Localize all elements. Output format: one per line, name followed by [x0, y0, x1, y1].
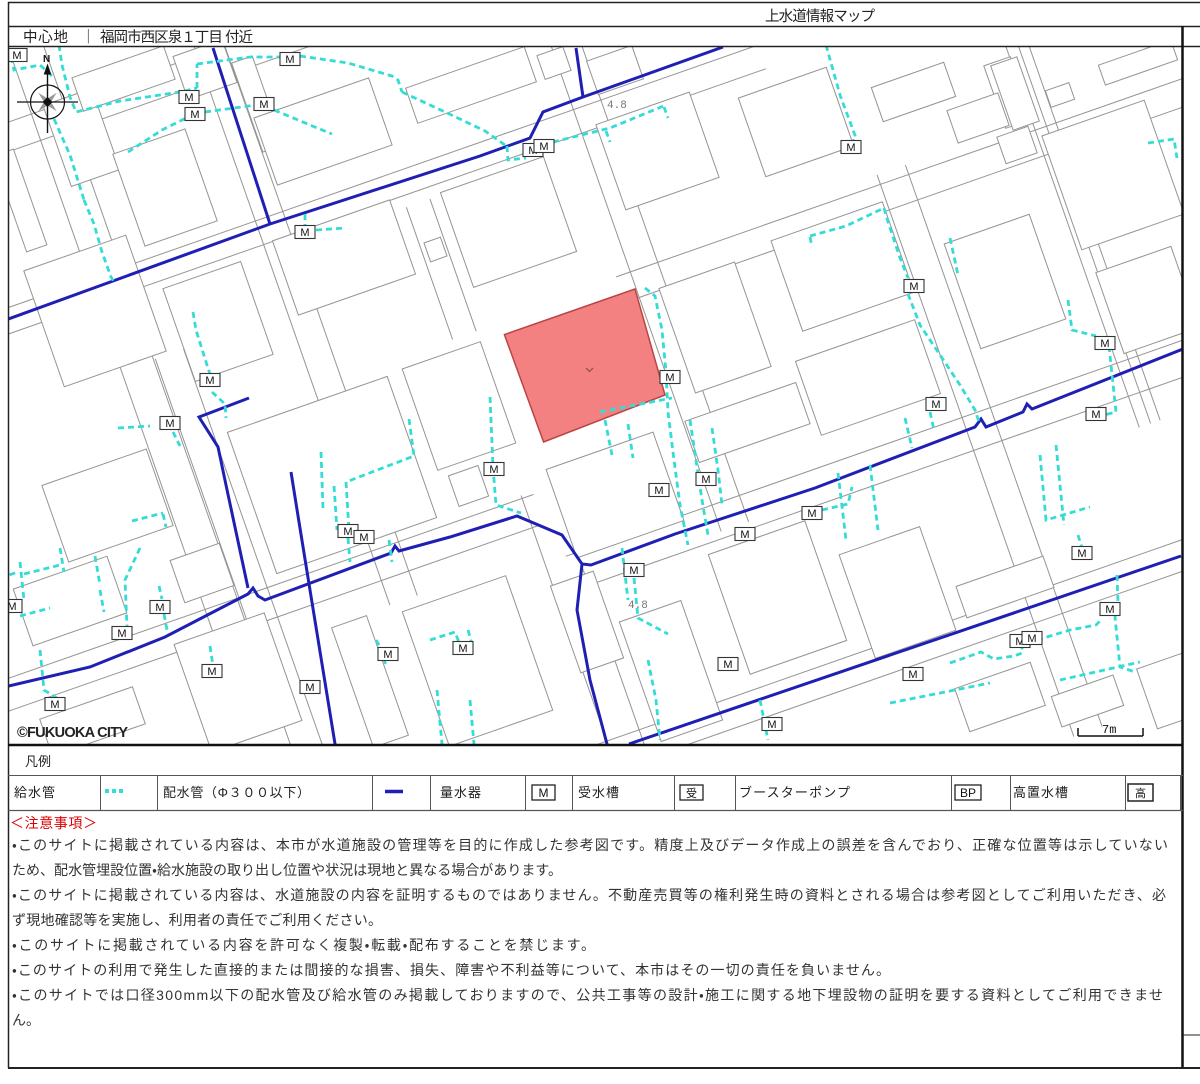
- svg-text:福岡市西区泉１丁目 付近: 福岡市西区泉１丁目 付近: [100, 29, 253, 46]
- svg-text:上水道情報マップ: 上水道情報マップ: [765, 8, 876, 25]
- svg-text:中心地: 中心地: [23, 29, 68, 46]
- svg-text:©FUKUOKA CITY: ©FUKUOKA CITY: [17, 725, 128, 741]
- svg-text:M: M: [259, 99, 268, 111]
- svg-text:M: M: [205, 375, 214, 387]
- svg-text:M: M: [207, 666, 216, 678]
- svg-text:・このサイトの利用で発生した直接的または間接的な損害、損失、: ・このサイトの利用で発生した直接的または間接的な損害、損失、障害や不利益等につい…: [12, 962, 890, 978]
- svg-text:M: M: [539, 141, 548, 153]
- svg-text:M: M: [1027, 633, 1036, 645]
- svg-text:M: M: [305, 682, 314, 694]
- svg-text:M: M: [740, 529, 749, 541]
- svg-text:・このサイトに掲載されている内容を許可なく複製・転載・配布す: ・このサイトに掲載されている内容を許可なく複製・転載・配布することを禁じます。: [12, 937, 595, 953]
- svg-text:・このサイトに掲載されている内容は、本市が水道施設の管理等を: ・このサイトに掲載されている内容は、本市が水道施設の管理等を目的に作成した参考図…: [12, 837, 1168, 853]
- svg-text:受: 受: [686, 787, 697, 800]
- svg-text:M: M: [539, 786, 549, 800]
- svg-text:BP: BP: [960, 786, 976, 800]
- svg-text:M: M: [117, 628, 126, 640]
- svg-text:M: M: [665, 372, 674, 384]
- svg-text:4.8: 4.8: [628, 600, 648, 612]
- svg-text:M: M: [723, 659, 732, 671]
- svg-text:M: M: [489, 464, 498, 476]
- svg-text:量水器: 量水器: [440, 785, 481, 800]
- svg-text:M: M: [190, 109, 199, 121]
- svg-text:7m: 7m: [1102, 723, 1116, 737]
- svg-text:配水管（Φ３００以下）: 配水管（Φ３００以下）: [163, 785, 310, 800]
- svg-text:ため、配水管埋設位置・給水施設の取り出し位置や状況は現地と異: ため、配水管埋設位置・給水施設の取り出し位置や状況は現地と異なる場合があります。: [12, 862, 562, 878]
- svg-text:N: N: [43, 54, 50, 65]
- svg-text:M: M: [807, 508, 816, 520]
- svg-text:M: M: [909, 281, 918, 293]
- svg-text:給水管: 給水管: [14, 785, 55, 800]
- svg-text:M: M: [12, 50, 21, 62]
- svg-text:ず現地確認等を実施し、利用者の責任でご利用ください。: ず現地確認等を実施し、利用者の責任でご利用ください。: [12, 912, 382, 928]
- svg-text:M: M: [383, 649, 392, 661]
- svg-text:M: M: [285, 54, 294, 66]
- svg-text:M: M: [1091, 409, 1100, 421]
- svg-text:＜注意事項＞: ＜注意事項＞: [10, 815, 97, 831]
- svg-text:M: M: [908, 669, 917, 681]
- svg-text:M: M: [184, 92, 193, 104]
- svg-text:M: M: [931, 399, 940, 411]
- svg-text:M: M: [155, 602, 164, 614]
- svg-text:｜: ｜: [81, 29, 96, 46]
- svg-text:ん。: ん。: [12, 1012, 40, 1028]
- svg-text:M: M: [359, 532, 368, 544]
- svg-text:M: M: [846, 142, 855, 154]
- svg-text:M: M: [701, 474, 710, 486]
- svg-text:凡例: 凡例: [25, 754, 51, 769]
- svg-text:M: M: [458, 643, 467, 655]
- svg-text:M: M: [300, 227, 309, 239]
- svg-text:高置水槽: 高置水槽: [1013, 785, 1068, 800]
- svg-text:高: 高: [1135, 786, 1146, 800]
- svg-text:M: M: [1100, 338, 1109, 350]
- svg-text:M: M: [1077, 548, 1086, 560]
- svg-text:ブースターポンプ: ブースターポンプ: [739, 785, 850, 800]
- svg-text:受水槽: 受水槽: [578, 785, 619, 800]
- svg-text:M: M: [629, 565, 638, 577]
- svg-text:・このサイトでは口径300mm以下の配水管及び給水管のみ掲載: ・このサイトでは口径300mm以下の配水管及び給水管のみ掲載しておりますので、公…: [12, 987, 1163, 1003]
- svg-text:M: M: [767, 719, 776, 731]
- svg-text:M: M: [343, 526, 352, 538]
- svg-text:・このサイトに掲載されている内容は、水道施設の内容を証明する: ・このサイトに掲載されている内容は、水道施設の内容を証明するものではありません。…: [12, 887, 1166, 903]
- svg-text:4.8: 4.8: [607, 100, 627, 112]
- svg-text:M: M: [165, 418, 174, 430]
- svg-text:M: M: [654, 485, 663, 497]
- svg-text:M: M: [50, 699, 59, 711]
- svg-text:M: M: [1105, 604, 1114, 616]
